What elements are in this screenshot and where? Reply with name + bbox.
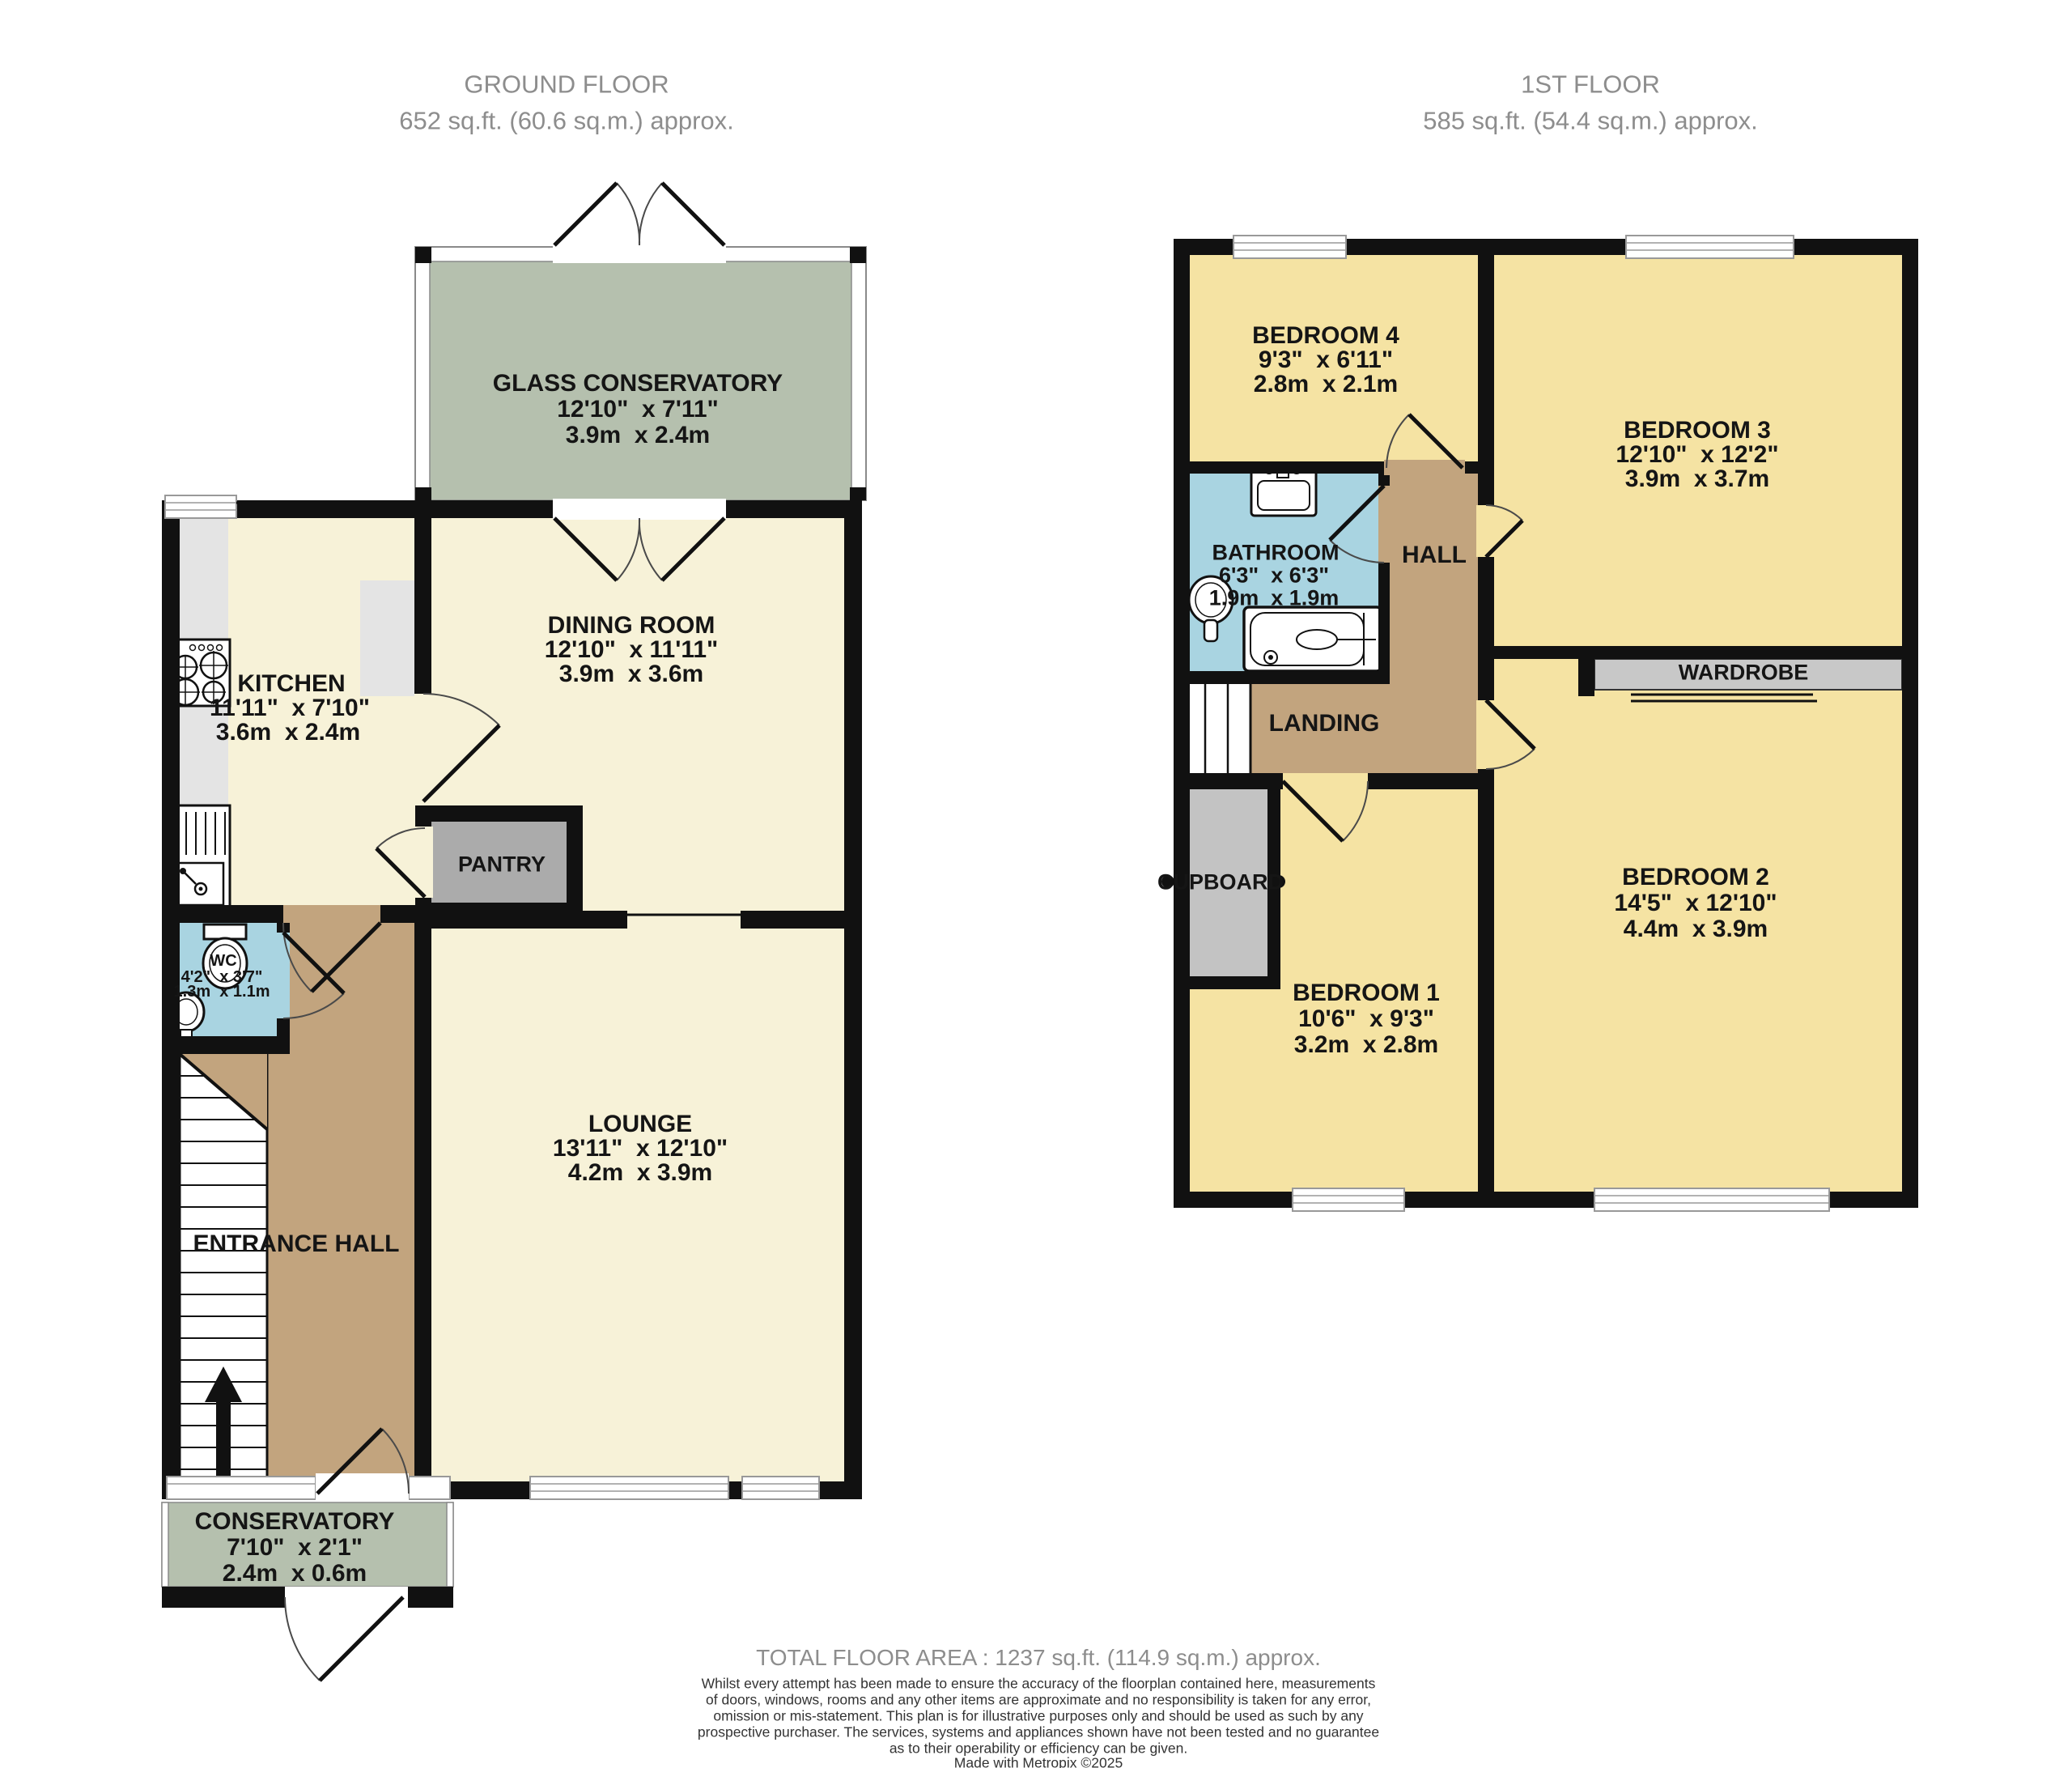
bath-icon <box>1244 607 1382 671</box>
room-dims-lounge: 13'11" x 12'10" <box>553 1137 728 1161</box>
room-label-dining-room: DINING ROOM <box>548 614 715 638</box>
floorplan-canvas: GROUND FLOOR 652 sq.ft. (60.6 sq.m.) app… <box>0 0 2072 1768</box>
disclaimer-line: Whilst every attempt has been made to en… <box>702 1677 1376 1691</box>
room-dims-bedroom3: 12'10" x 12'2" <box>1616 443 1778 467</box>
room-dims-bathroom: 6'3" x 6'3" <box>1219 565 1329 587</box>
total-floor-area: TOTAL FLOOR AREA : 1237 sq.ft. (114.9 sq… <box>756 1647 1321 1669</box>
room-label-pantry: PANTRY <box>458 854 546 876</box>
room-dims-bedroom2-metric: 4.4m x 3.9m <box>1624 917 1768 941</box>
room-dims-wc-metric: 1.3m x 1.1m <box>174 984 270 1000</box>
room-dims-bedroom3-metric: 3.9m x 3.7m <box>1625 467 1769 491</box>
room-label-glass-conservatory: GLASS CONSERVATORY <box>493 372 783 396</box>
room-dims-glass-conservatory: 12'10" x 7'11" <box>557 397 719 422</box>
room-label-entrance-hall: ENTRANCE HALL <box>193 1232 400 1256</box>
room-label-bedroom1: BEDROOM 1 <box>1293 981 1440 1005</box>
disclaimer-line: as to their operability or efficiency ca… <box>890 1741 1187 1756</box>
room-label-landing: LANDING <box>1269 712 1380 736</box>
disclaimer-line: prospective purchaser. The services, sys… <box>698 1725 1379 1740</box>
room-label-bathroom: BATHROOM <box>1212 542 1340 564</box>
room-label-bedroom4: BEDROOM 4 <box>1252 324 1399 348</box>
room-dims-bedroom1: 10'6" x 9'3" <box>1298 1007 1434 1031</box>
window <box>165 495 236 518</box>
french-doors-top <box>554 183 724 245</box>
credit-line: Made with Metropix ©2025 <box>954 1756 1123 1768</box>
first-floor-title: 1ST FLOOR <box>1521 72 1660 97</box>
ground-floor-title: GROUND FLOOR <box>464 72 669 97</box>
disclaimer-line: omission or mis-statement. This plan is … <box>713 1709 1363 1723</box>
room-dims-conservatory: 7'10" x 2'1" <box>227 1536 363 1560</box>
room-label-wardrobe: WARDROBE <box>1679 662 1809 684</box>
first-floor-area: 585 sq.ft. (54.4 sq.m.) approx. <box>1423 108 1758 134</box>
room-dims-kitchen-metric: 3.6m x 2.4m <box>216 720 360 745</box>
room-dims-bedroom1-metric: 3.2m x 2.8m <box>1294 1033 1438 1057</box>
room-dims-lounge-metric: 4.2m x 3.9m <box>568 1161 712 1185</box>
room-label-conservatory: CONSERVATORY <box>195 1510 395 1534</box>
ground-floor-plan <box>162 183 866 1681</box>
room-label-cupboard: CUPBOARD <box>1157 872 1284 894</box>
room-dims-bedroom4: 9'3" x 6'11" <box>1259 348 1393 372</box>
room-label-hall: HALL <box>1402 543 1467 567</box>
room-label-kitchen: KITCHEN <box>237 672 345 696</box>
room-dims-glass-conservatory-metric: 3.9m x 2.4m <box>566 423 710 448</box>
room-dims-bedroom2: 14'5" x 12'10" <box>1614 891 1777 916</box>
stairs <box>1182 677 1250 776</box>
room-dims-bedroom4-metric: 2.8m x 2.1m <box>1254 372 1398 397</box>
stairs <box>180 1054 267 1481</box>
room-label-lounge: LOUNGE <box>588 1112 692 1137</box>
room-label-bedroom2: BEDROOM 2 <box>1622 865 1769 890</box>
glass-conservatory <box>415 183 866 500</box>
ground-floor-area: 652 sq.ft. (60.6 sq.m.) approx. <box>399 108 734 134</box>
disclaimer-line: of doors, windows, rooms and any other i… <box>706 1693 1371 1707</box>
room-dims-kitchen: 11'11" x 7'10" <box>210 696 370 720</box>
room-dims-dining-room-metric: 3.9m x 3.6m <box>559 662 703 686</box>
room-label-wc: WC <box>210 953 236 969</box>
room-label-bedroom3: BEDROOM 3 <box>1624 419 1771 443</box>
room-dims-dining-room: 12'10" x 11'11" <box>545 638 719 662</box>
room-dims-bathroom-metric: 1.9m x 1.9m <box>1209 588 1340 610</box>
room-dims-conservatory-metric: 2.4m x 0.6m <box>223 1562 367 1586</box>
kitchen-unit <box>360 580 414 696</box>
